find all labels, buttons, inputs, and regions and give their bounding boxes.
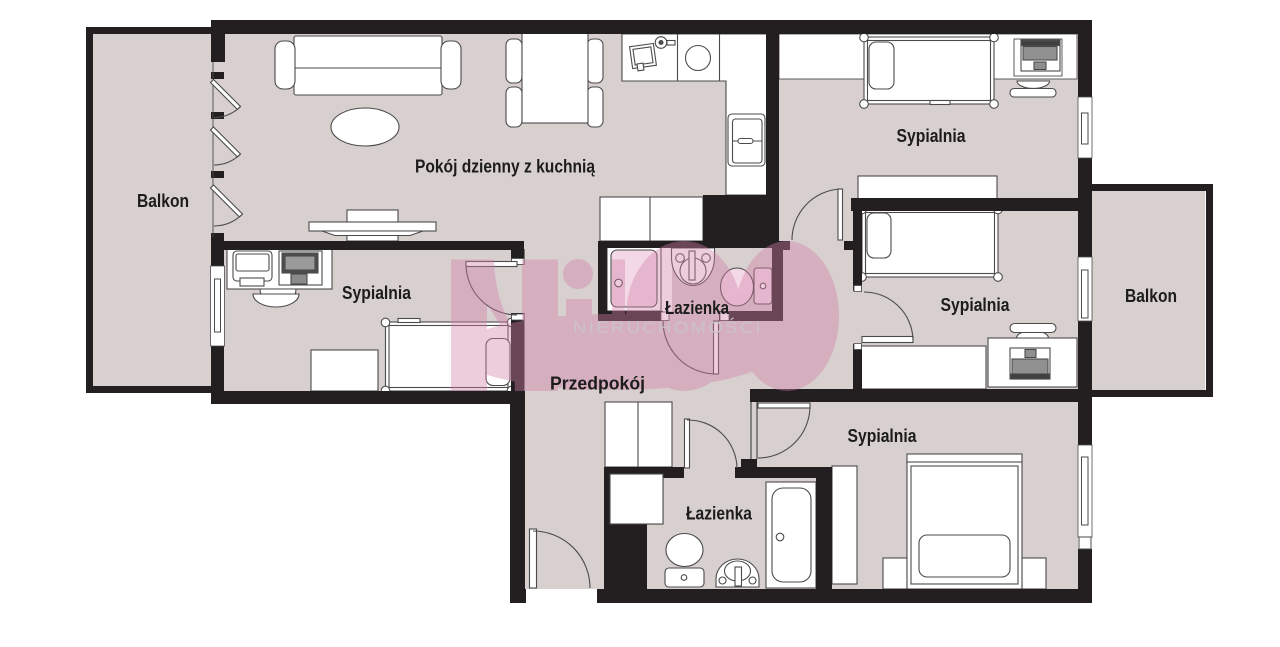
svg-text:NIERUCHOMOŚCI: NIERUCHOMOŚCI xyxy=(573,318,763,337)
svg-text:Balkon: Balkon xyxy=(137,191,189,211)
svg-text:Sypialnia: Sypialnia xyxy=(897,126,967,146)
svg-text:Łazienka: Łazienka xyxy=(686,504,753,524)
svg-text:Sypialnia: Sypialnia xyxy=(941,295,1011,315)
svg-text:Sypialnia: Sypialnia xyxy=(848,426,918,446)
svg-text:Przedpokój: Przedpokój xyxy=(550,374,645,394)
svg-text:Sypialnia: Sypialnia xyxy=(342,283,412,303)
svg-text:Balkon: Balkon xyxy=(1125,286,1177,306)
svg-text:Pokój dzienny z kuchnią: Pokój dzienny z kuchnią xyxy=(415,157,596,177)
svg-text:Łazienka: Łazienka xyxy=(665,298,730,318)
